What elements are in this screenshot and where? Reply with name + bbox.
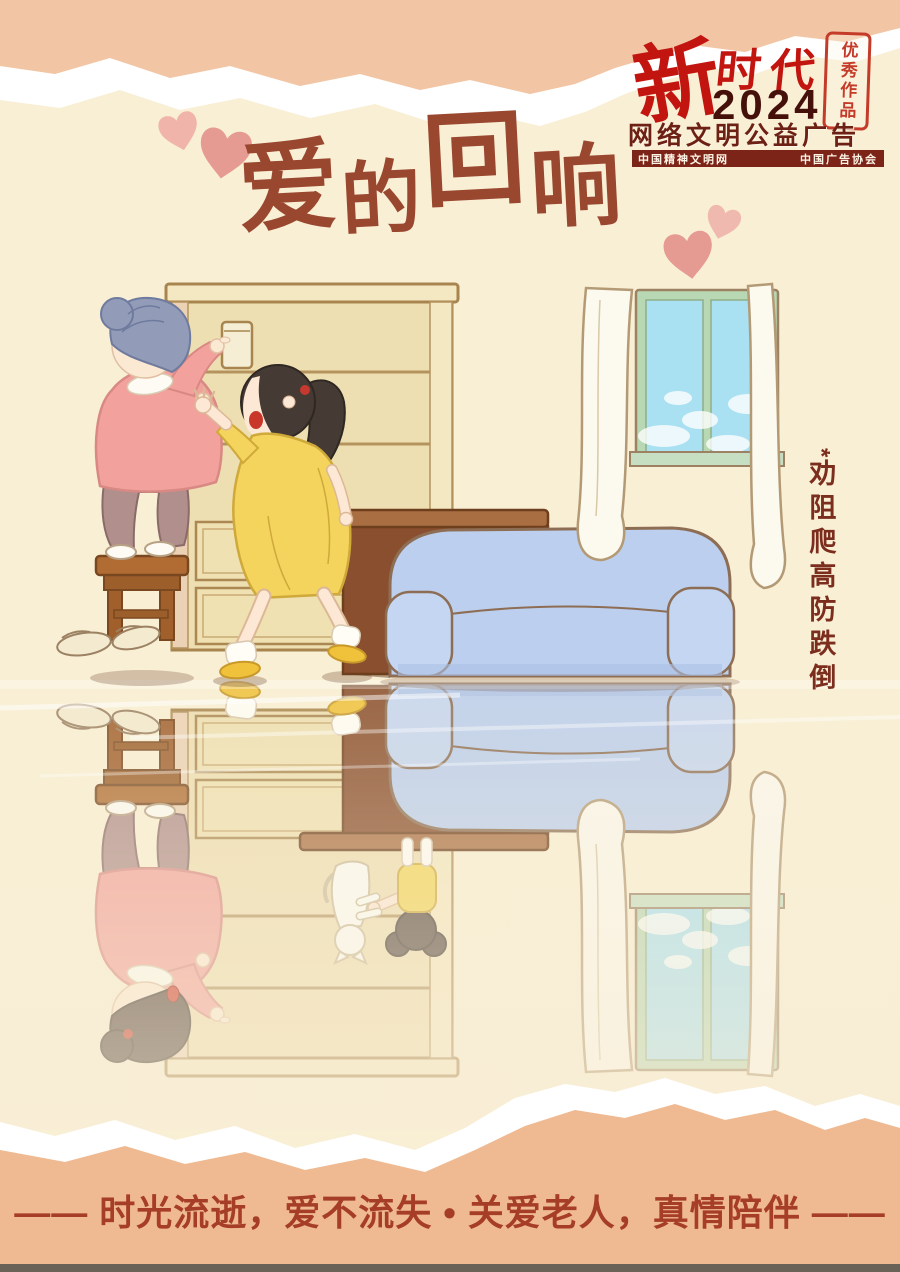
organizations-bar: 中国精神文明网 中国广告协会	[632, 150, 884, 167]
title-char: 回	[421, 107, 528, 214]
bottom-tagline: —— 时光流逝，爱不流失 • 关爱老人，真情陪伴 ——	[0, 1184, 900, 1236]
title-char: 爱	[236, 135, 341, 240]
org-left-label: 中国精神文明网	[638, 151, 729, 167]
footnote-asterisk: *	[807, 448, 834, 459]
page-title: 爱的回响	[236, 118, 623, 240]
glass-jar-icon	[222, 322, 252, 368]
safety-side-note: *劝阻爬高防跌倒	[804, 448, 836, 697]
bottom-strip	[0, 1264, 900, 1272]
campaign-subtitle: 网络文明公益广告	[628, 116, 886, 152]
side-note-text: 劝阻爬高防跌倒	[805, 459, 835, 697]
reflection-fade	[0, 690, 900, 1130]
title-char: 的	[339, 158, 423, 242]
title-char: 响	[528, 141, 623, 236]
poster-root: 新 时代 2024 优秀作品 网络文明公益广告 中国精神文明网 中国广告协会 爱…	[0, 0, 900, 1272]
org-right-label: 中国广告协会	[800, 151, 878, 167]
